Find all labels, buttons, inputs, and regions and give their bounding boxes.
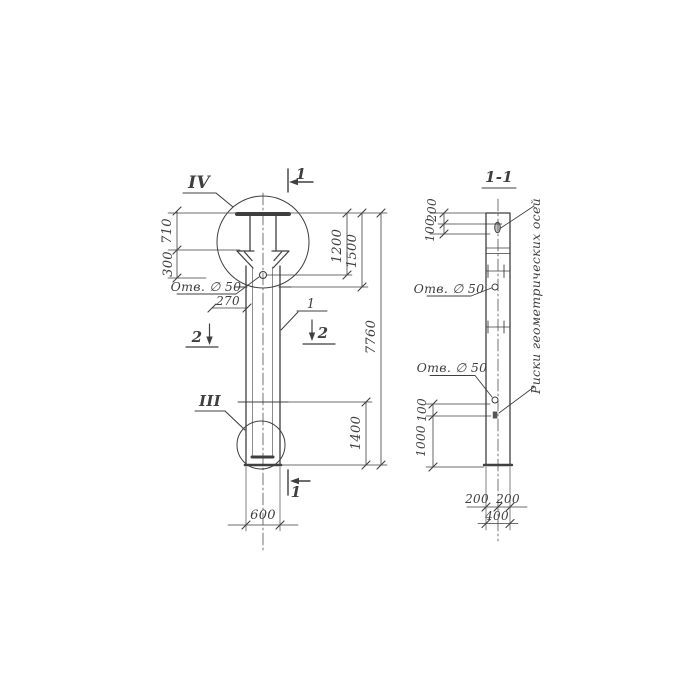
- section-upper-hole: [492, 284, 498, 290]
- dim-head-height: 710: [160, 218, 175, 244]
- dim-hole-to-mark: 100: [415, 398, 429, 422]
- detail-marker-bottom-leader: [195, 411, 245, 430]
- right-corbel: [272, 251, 289, 268]
- column-inner-edges: [253, 267, 273, 456]
- dim-lower-segment: 1400: [349, 416, 364, 450]
- detail-marker-bottom-label: III: [198, 392, 222, 410]
- dim-overall-length: 7760: [364, 320, 379, 354]
- hole-note-section-lower-leader: [430, 376, 492, 398]
- section-view-title: 1-1: [485, 168, 513, 186]
- section-cut-right-label: 2: [317, 324, 329, 342]
- dim-width-elevation: 600: [250, 508, 276, 523]
- scanned-technical-drawing: IV III 1 1 2 2 1 Отв. ∅ 50 270 710 300 1…: [0, 0, 700, 700]
- dim-head-to-hole: 300: [161, 251, 176, 277]
- elevation-view: IV III 1 1 2 2 1 Отв. ∅ 50 270 710 300 1…: [160, 165, 387, 552]
- detail-marker-top-label: IV: [187, 173, 211, 193]
- detail-marker-top-leader: [183, 193, 233, 207]
- dim-top-to-joint: 1500: [345, 234, 360, 268]
- column-drawing-canvas: IV III 1 1 2 2 1 Отв. ∅ 50 270 710 300 1…: [0, 0, 700, 700]
- dim-half-width-left: 200: [464, 492, 489, 506]
- section-risk-ticks: [488, 265, 504, 333]
- detail-circle-bottom: [237, 421, 285, 469]
- dim-hole-offset: 270: [215, 294, 240, 308]
- hole-note-section-upper: Отв. ∅ 50: [414, 281, 485, 296]
- section-cut-right-arrowhead: [309, 333, 315, 342]
- section-cut-bottom-label: 1: [291, 483, 302, 501]
- hole-note-section-lower: Отв. ∅ 50: [417, 360, 488, 375]
- axis-risk-mark: [493, 412, 498, 419]
- dim-slot-height: 100: [423, 218, 437, 242]
- section-cut-left-arrowhead: [206, 337, 212, 346]
- dim-mark-to-base: 1000: [414, 425, 428, 457]
- section-cut-top-label: 1: [296, 165, 307, 183]
- left-corbel: [237, 251, 254, 268]
- dim-overall-width: 400: [484, 509, 509, 523]
- dim-top-to-hole: 1200: [330, 229, 345, 263]
- section-cut-left-label: 2: [191, 328, 203, 346]
- dim-half-width-right: 200: [495, 492, 520, 506]
- part-number-label: 1: [307, 297, 316, 312]
- hole-note-elevation: Отв. ∅ 50: [171, 279, 242, 294]
- section-view: 1-1 Отв. ∅ 50 Отв. ∅ 50 Риски геометриче…: [414, 168, 543, 541]
- section-lower-hole: [492, 397, 498, 403]
- axes-note: Риски геометрических осей: [528, 198, 543, 395]
